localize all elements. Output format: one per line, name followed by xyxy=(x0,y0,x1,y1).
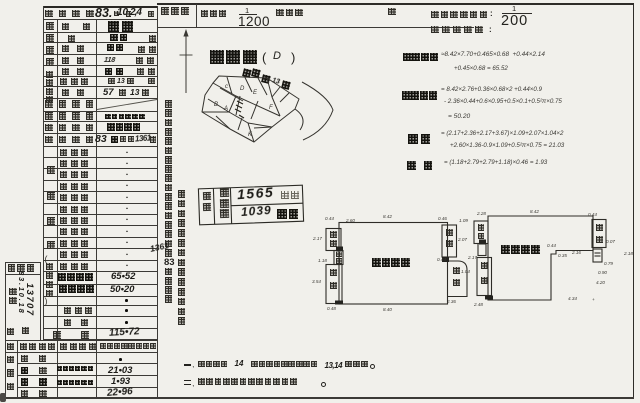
svg-text:c: c xyxy=(225,84,228,90)
svg-text:D: D xyxy=(240,86,245,92)
svg-text:B: B xyxy=(214,102,218,108)
svg-text:F: F xyxy=(269,105,273,111)
svg-text:E: E xyxy=(253,90,258,96)
svg-text:A: A xyxy=(223,106,228,112)
